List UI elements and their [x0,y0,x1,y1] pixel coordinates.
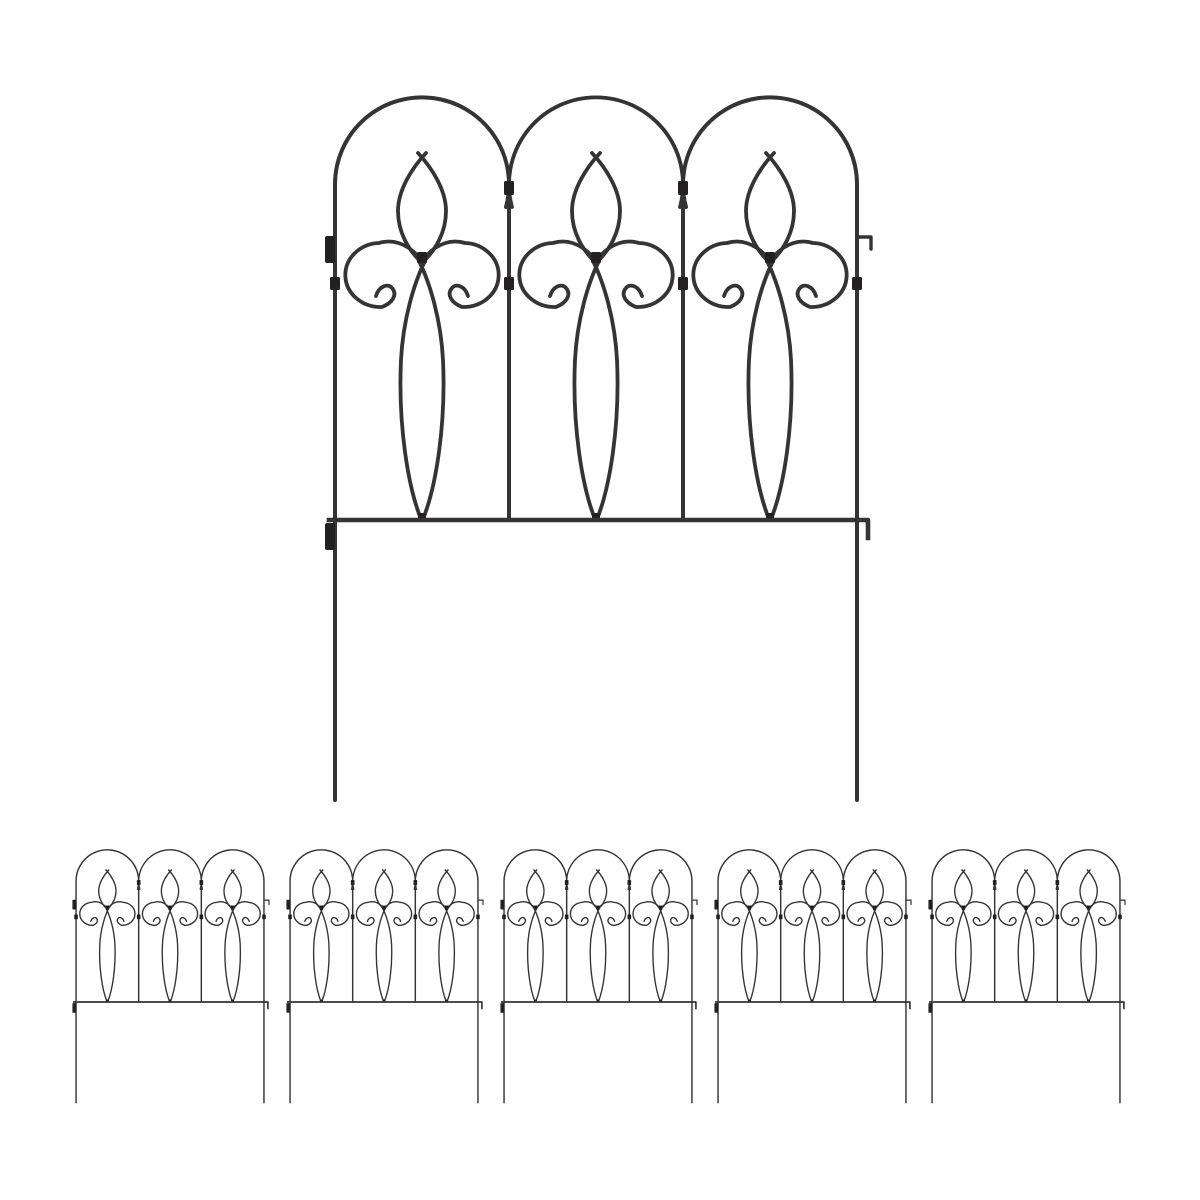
fence-panel-large [325,97,871,800]
product-image-svg [0,0,1200,1200]
product-photo [0,0,1200,1200]
fence-panel-small-2 [286,850,483,1103]
page: { "canvas": { "width": 1200, "height": 1… [0,0,1200,1200]
fence-panel-small-4 [714,850,911,1103]
fence-panel-small-3 [500,850,697,1103]
fence-panel-small-5 [928,850,1125,1103]
fence-panels [72,97,1125,1102]
fence-panel-small-1 [72,850,269,1103]
